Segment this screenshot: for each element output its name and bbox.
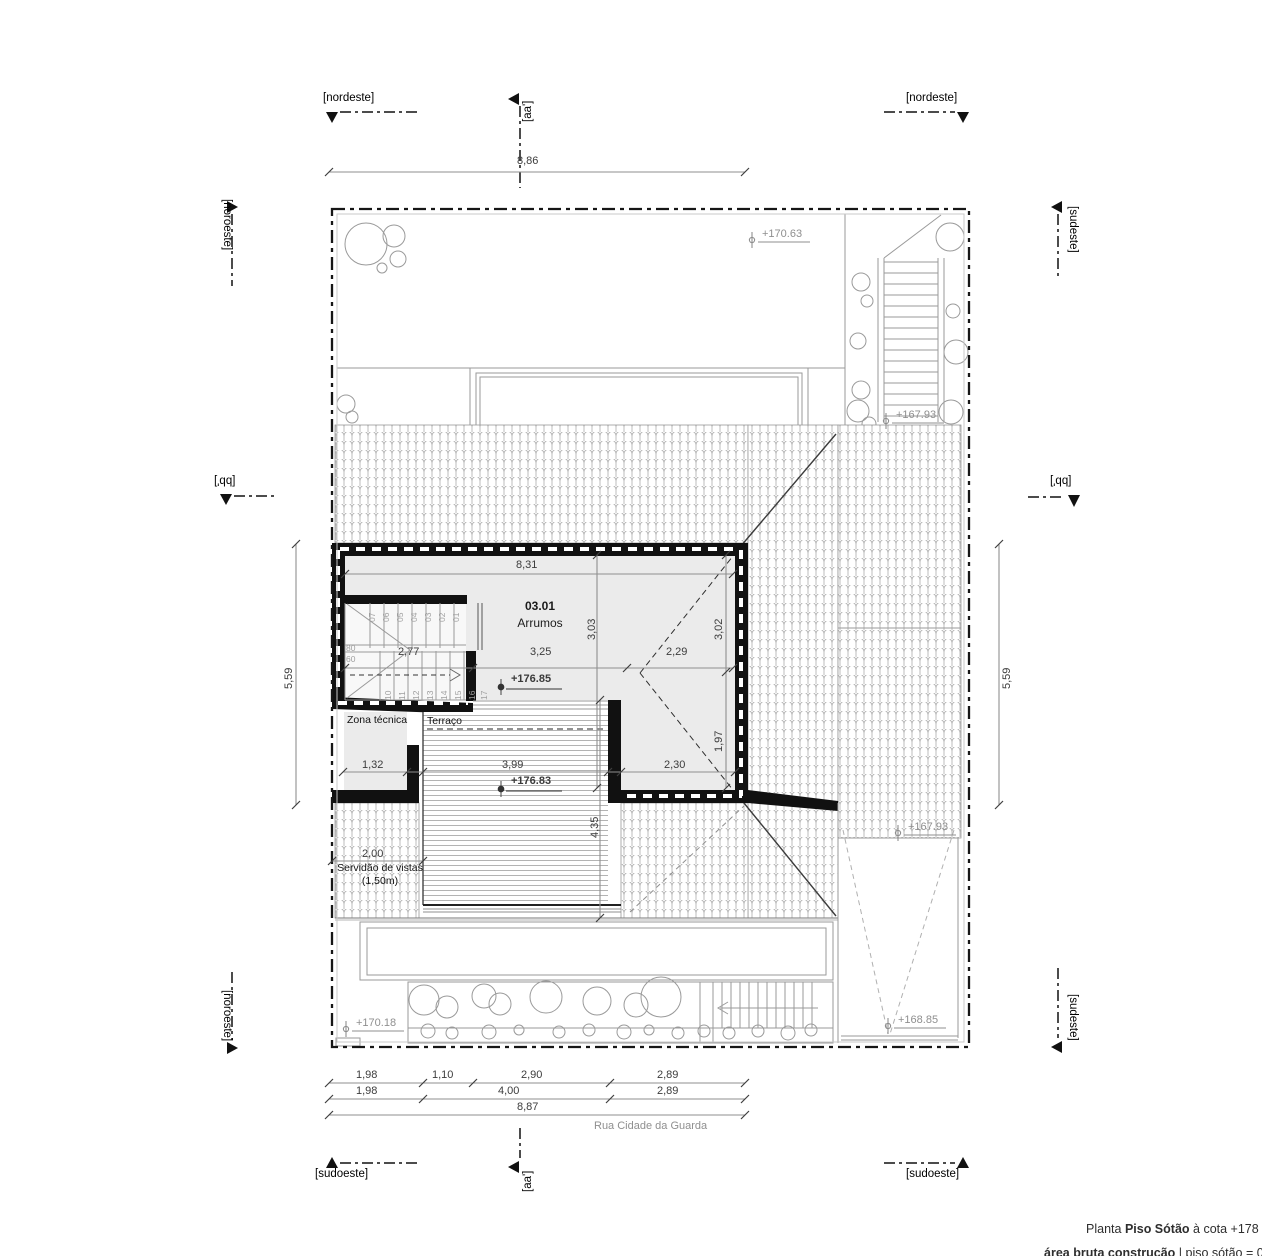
dim-b1-3: 2,89 bbox=[657, 1070, 678, 1081]
dim-chain-low-0: 1,32 bbox=[362, 760, 383, 771]
room-name: Arrumos bbox=[505, 617, 575, 629]
dim-terrace-height: 4,35 bbox=[590, 817, 601, 838]
level-garden-bottom: +170.18 bbox=[356, 1018, 396, 1029]
dim-chain-mid-1: 3,25 bbox=[530, 647, 551, 658]
drawing-area-note: área bruta construção | piso sótão = 03 bbox=[1044, 1246, 1262, 1256]
drawing-title-suffix: à cota +178 bbox=[1193, 1222, 1259, 1236]
stair-num-10: 10 bbox=[384, 691, 393, 700]
dim-chain-low-1: 3,99 bbox=[502, 760, 523, 771]
dim-room-height: 3,03 bbox=[587, 619, 598, 640]
level-ramp: +168.85 bbox=[898, 1015, 938, 1026]
marker-bb-left: [bb'] bbox=[214, 474, 235, 486]
dim-right-upper: 3,02 bbox=[714, 619, 725, 640]
garden-bottom bbox=[335, 920, 838, 1046]
marker-sudeste-bottom: [sudeste] bbox=[1067, 994, 1079, 1041]
area-value: | piso sótão = 03 bbox=[1179, 1246, 1262, 1256]
stair-num-16: 16 bbox=[468, 691, 477, 700]
dim-chain-mid-0: 2,77 bbox=[398, 647, 419, 658]
drawing-title-prefix: Planta bbox=[1086, 1222, 1121, 1236]
marker-aa-bottom: [aa'] bbox=[523, 1171, 535, 1192]
servidao-line1: Servidão de vistas bbox=[332, 863, 428, 874]
dim-servidao: 2,00 bbox=[362, 849, 383, 860]
dim-right-height: 5,59 bbox=[1002, 668, 1013, 689]
stair-num-15: 15 bbox=[454, 691, 463, 700]
drawing-title-name: Piso Sótão bbox=[1125, 1222, 1190, 1236]
level-attic: +176.85 bbox=[511, 674, 551, 685]
dim-b2-2: 2,89 bbox=[657, 1086, 678, 1097]
stair-width-60: 60 bbox=[346, 655, 355, 664]
area-label: área bruta construção bbox=[1044, 1246, 1175, 1256]
level-court: +167.93 bbox=[908, 822, 948, 833]
stair-num-02: 02 bbox=[438, 613, 447, 622]
floor-plan-page: [nordeste] [nordeste] [aa'] [aa'] [noroe… bbox=[0, 0, 1262, 1256]
level-terrace: +176.83 bbox=[511, 776, 551, 787]
room-zona-tecnica: Zona técnica bbox=[347, 715, 407, 726]
stair-num-17: 17 bbox=[480, 691, 489, 700]
servidao-line2: (1,50m) bbox=[332, 876, 428, 887]
stair-num-04: 04 bbox=[410, 613, 419, 622]
street-name: Rua Cidade da Guarda bbox=[594, 1121, 707, 1132]
dim-b2-0: 1,98 bbox=[356, 1086, 377, 1097]
stair-num-13: 13 bbox=[426, 691, 435, 700]
dim-b1-0: 1,98 bbox=[356, 1070, 377, 1081]
dim-chain-mid-2: 2,29 bbox=[666, 647, 687, 658]
dim-right-lower: 1,97 bbox=[714, 731, 725, 752]
dim-chain-low-2: 2,30 bbox=[664, 760, 685, 771]
dim-b2-1: 4,00 bbox=[498, 1086, 519, 1097]
dim-left-height: 5,59 bbox=[284, 668, 295, 689]
stair-num-05: 05 bbox=[396, 613, 405, 622]
marker-sudeste-top: [sudeste] bbox=[1067, 206, 1079, 253]
stair-num-06: 06 bbox=[382, 613, 391, 622]
marker-sudoeste-left: [sudoeste] bbox=[315, 1169, 368, 1181]
marker-nordeste-right: [nordeste] bbox=[906, 93, 957, 105]
marker-aa-top: [aa'] bbox=[523, 101, 535, 122]
dim-room-width: 8,31 bbox=[516, 560, 537, 571]
room-code: 03.01 bbox=[505, 600, 575, 612]
drawing-title: Planta Piso Sótão à cota +178 bbox=[1086, 1222, 1259, 1236]
room-terraco: Terraço bbox=[427, 716, 462, 727]
dim-top-width: 8,86 bbox=[517, 156, 538, 167]
dim-b1-2: 2,90 bbox=[521, 1070, 542, 1081]
terrace bbox=[423, 701, 621, 912]
stair-num-11: 11 bbox=[398, 691, 407, 700]
stair-width-80: 80 bbox=[346, 644, 355, 653]
stair-num-01: 01 bbox=[452, 613, 461, 622]
level-garden-top: +170.63 bbox=[762, 229, 802, 240]
marker-noroeste-bottom: [noroeste] bbox=[221, 990, 233, 1041]
stair-num-03: 03 bbox=[424, 613, 433, 622]
marker-sudoeste-right: [sudoeste] bbox=[906, 1169, 959, 1181]
garden-top bbox=[337, 214, 968, 431]
marker-noroeste-top: [noroeste] bbox=[221, 199, 233, 250]
stair-num-07: 07 bbox=[368, 613, 377, 622]
marker-bb-right: [bb'] bbox=[1050, 474, 1071, 486]
floor-plan-drawing bbox=[0, 0, 1262, 1256]
stair-num-14: 14 bbox=[440, 691, 449, 700]
dim-bottom-total: 8,87 bbox=[517, 1102, 538, 1113]
marker-nordeste-left: [nordeste] bbox=[323, 93, 374, 105]
stair-num-12: 12 bbox=[412, 691, 421, 700]
level-stair-top: +167.93 bbox=[896, 410, 936, 421]
dim-b1-1: 1,10 bbox=[432, 1070, 453, 1081]
